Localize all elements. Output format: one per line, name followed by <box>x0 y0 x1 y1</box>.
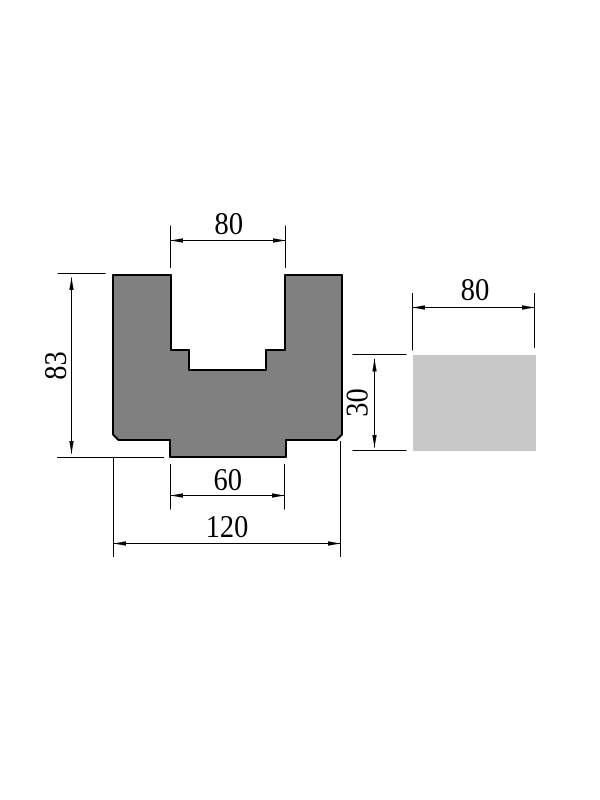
svg-text:60: 60 <box>214 461 243 497</box>
svg-text:83: 83 <box>37 351 73 380</box>
svg-text:80: 80 <box>461 271 490 307</box>
svg-text:30: 30 <box>338 388 374 417</box>
svg-text:120: 120 <box>206 508 249 544</box>
svg-text:80: 80 <box>214 205 243 241</box>
